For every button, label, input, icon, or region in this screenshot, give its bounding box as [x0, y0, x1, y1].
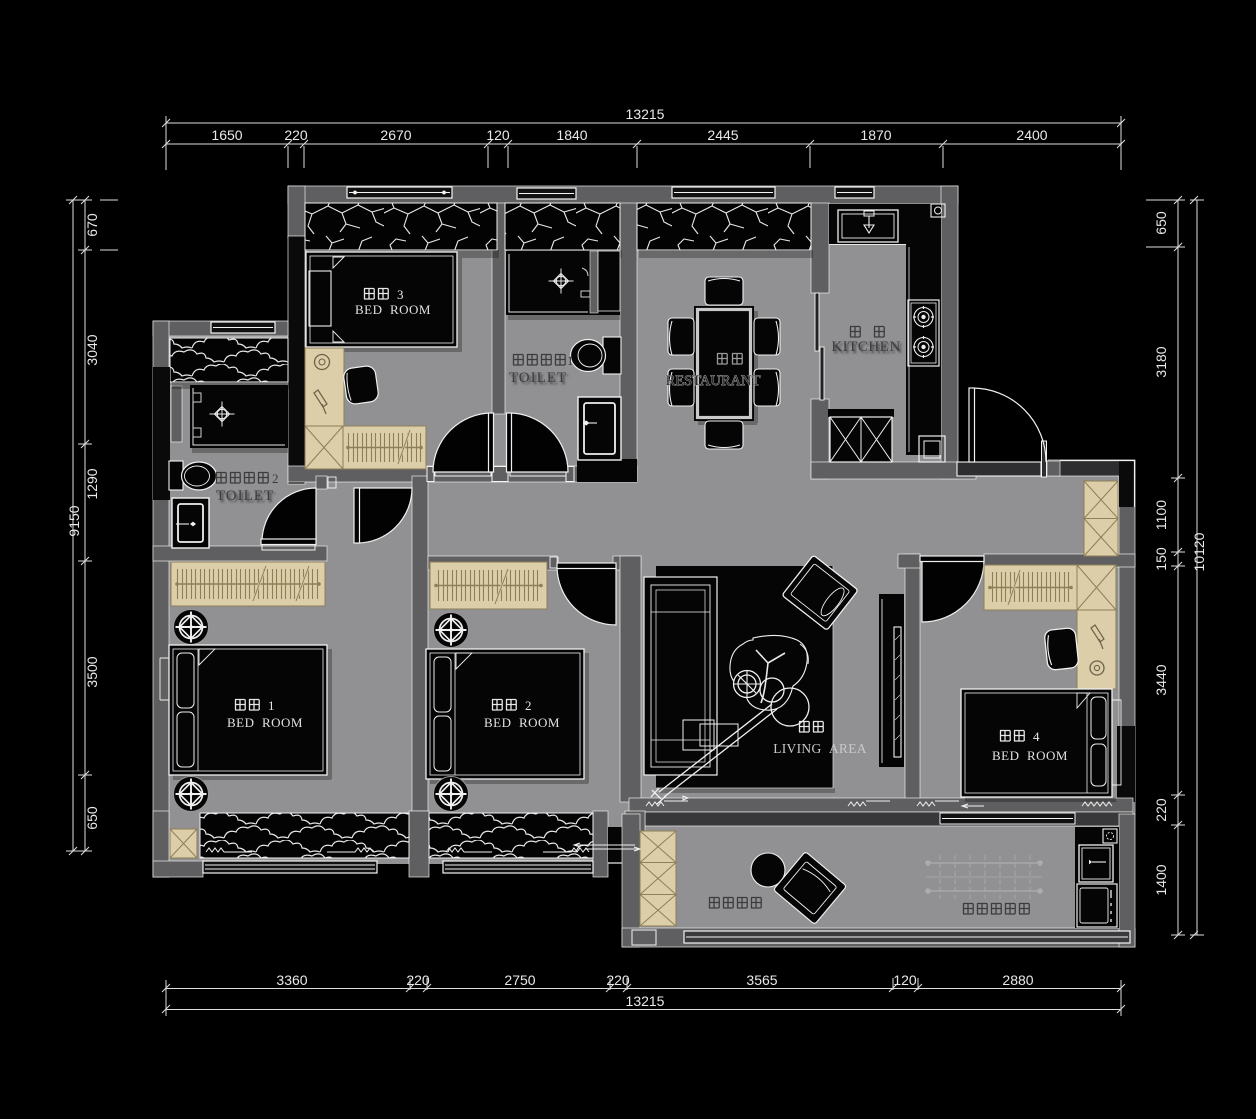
- svg-text:3180: 3180: [1153, 346, 1169, 377]
- svg-text:3360: 3360: [276, 972, 307, 988]
- svg-text:1: 1: [567, 353, 574, 368]
- svg-text:150: 150: [1153, 547, 1169, 571]
- svg-text:RESTAURANT: RESTAURANT: [666, 373, 761, 389]
- svg-text:4: 4: [1033, 729, 1040, 744]
- svg-text:1650: 1650: [211, 127, 242, 143]
- svg-text:2: 2: [272, 471, 279, 486]
- svg-text:120: 120: [893, 972, 917, 988]
- svg-text:650: 650: [84, 806, 100, 830]
- svg-text:2400: 2400: [1016, 127, 1047, 143]
- svg-text:1: 1: [268, 698, 275, 713]
- svg-text:670: 670: [84, 213, 100, 237]
- svg-text:1840: 1840: [556, 127, 587, 143]
- svg-text:2445: 2445: [707, 127, 738, 143]
- svg-text:9150: 9150: [66, 505, 82, 536]
- svg-text:2: 2: [525, 698, 532, 713]
- svg-text:3440: 3440: [1153, 664, 1169, 695]
- svg-text:13215: 13215: [626, 993, 665, 1009]
- svg-text:3565: 3565: [746, 972, 777, 988]
- svg-text:3: 3: [397, 287, 404, 302]
- svg-text:3040: 3040: [84, 334, 100, 365]
- svg-text:2880: 2880: [1002, 972, 1033, 988]
- svg-text:10120: 10120: [1191, 532, 1207, 571]
- svg-text:2750: 2750: [504, 972, 535, 988]
- svg-text:2670: 2670: [380, 127, 411, 143]
- svg-text:650: 650: [1153, 211, 1169, 235]
- svg-text:KITCHEN: KITCHEN: [831, 339, 900, 355]
- svg-text:13215: 13215: [626, 106, 665, 122]
- svg-text:1870: 1870: [860, 127, 891, 143]
- svg-text:LIVING AREA: LIVING AREA: [773, 741, 867, 756]
- svg-text:BED ROOM: BED ROOM: [992, 748, 1068, 763]
- svg-text:1290: 1290: [84, 468, 100, 499]
- svg-text:220: 220: [1153, 798, 1169, 822]
- svg-text:220: 220: [284, 127, 308, 143]
- svg-text:TOILET: TOILET: [216, 488, 274, 504]
- svg-text:120: 120: [486, 127, 510, 143]
- svg-text:220: 220: [406, 972, 430, 988]
- svg-text:220: 220: [606, 972, 630, 988]
- svg-text:1400: 1400: [1153, 864, 1169, 895]
- svg-text:TOILET: TOILET: [509, 370, 567, 386]
- svg-text:3500: 3500: [84, 656, 100, 687]
- svg-text:BED ROOM: BED ROOM: [484, 715, 560, 730]
- svg-text:BED ROOM: BED ROOM: [355, 302, 431, 317]
- svg-text:1100: 1100: [1153, 500, 1169, 530]
- svg-text:BED ROOM: BED ROOM: [227, 715, 303, 730]
